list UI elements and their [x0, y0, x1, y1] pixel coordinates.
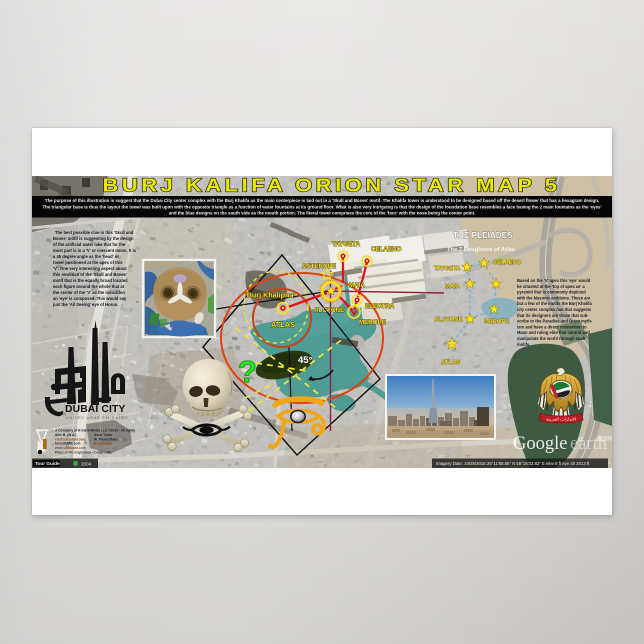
- svg-text:الامارات العربية: الامارات العربية: [546, 417, 576, 421]
- svg-text:'V'. One very interesting aspe: 'V'. One very interesting aspect about: [53, 266, 127, 271]
- svg-text:BURJ KALIFA ORION STAR MAP 5: BURJ KALIFA ORION STAR MAP 5: [103, 176, 561, 196]
- svg-text:A Company of A-Saint-Media LLC: A Company of A-Saint-Media LLC ©2015 - A…: [55, 429, 135, 433]
- svg-text:MEROPE: MEROPE: [484, 319, 509, 325]
- svg-text:The purpose of this illustrati: The purpose of this illustration is sugg…: [45, 198, 599, 203]
- svg-text:motif that is the equally broa: motif that is the equally broad located: [53, 278, 128, 283]
- svg-text:but a few of the motifs the Bu: but a few of the motifs the Burj Khalifa: [517, 301, 593, 306]
- svg-text:each figure around the whole: each figure around the whole that at: [53, 284, 125, 289]
- svg-text:MEROPE: MEROPE: [359, 319, 386, 326]
- svg-text:Anna Tower: Anna Tower: [94, 433, 113, 437]
- svg-text:ELECTRA: ELECTRA: [365, 303, 395, 310]
- svg-text:a 45 degree angle as the 'head: a 45 degree angle as the 'head' or: [53, 254, 119, 259]
- svg-text:tony@UMB.com: tony@UMB.com: [55, 442, 80, 446]
- svg-text:?: ?: [238, 354, 257, 389]
- svg-text:manipulate the world through s: manipulate the world through such: [517, 336, 586, 341]
- svg-text:Based on the 'V' apex this 'ey: Based on the 'V' apex this 'eye' would: [517, 278, 591, 283]
- svg-text:ATLAS: ATLAS: [271, 320, 295, 329]
- svg-text:Bones' motif is suggesting by: Bones' motif is suggesting by the design: [53, 236, 134, 241]
- svg-text:earth: earth: [570, 434, 607, 454]
- svg-text:ALCYONE: ALCYONE: [434, 317, 462, 323]
- svg-text:and the blue designs on the so: and the blue designs on the south side a…: [169, 211, 476, 216]
- svg-text:TAYGETA: TAYGETA: [434, 266, 461, 272]
- svg-text:CELAENO: CELAENO: [371, 246, 401, 253]
- svg-text:that its designers are those t: that its designers are those that sub-: [517, 313, 589, 318]
- svg-text:'Burj Khalipha': 'Burj Khalipha': [245, 291, 295, 300]
- svg-text:TAYGETA: TAYGETA: [332, 241, 361, 248]
- svg-text:THE PLEIADES: THE PLEIADES: [453, 231, 513, 240]
- svg-text:Google: Google: [513, 434, 567, 454]
- svg-text:of the artificial water lake t: of the artificial water lake that for th…: [53, 242, 126, 247]
- svg-text:pyramid that is commonly depic: pyramid that is commonly depicted: [517, 290, 586, 295]
- svg-text:The triangular base is thus th: The triangular base is thus the layout t…: [42, 204, 601, 209]
- svg-text:most part is in a 'V' or cresc: most part is in a 'V' or crescent moon. …: [53, 248, 137, 253]
- svg-text:be situated at the 'top of ape: be situated at the 'top of apex as' a: [517, 284, 585, 289]
- svg-text:this rendition of the 'Skull a: this rendition of the 'Skull and Bones': [53, 272, 127, 277]
- svg-text:ATLAS: ATLAS: [441, 360, 460, 366]
- svg-text:motifs.: motifs.: [517, 342, 530, 347]
- svg-text:Maan and ruling elite that con: Maan and ruling elite that control and: [517, 330, 590, 335]
- svg-text:just the 'All Seeing' eye of H: just the 'All Seeing' eye of Horus.: [52, 302, 118, 307]
- svg-text:The best possible clue in this: The best possible clue in this 'Skull an…: [55, 230, 134, 235]
- svg-text:an 'eye' is composed. This wo: an 'eye' is composed. This would say: [53, 296, 127, 301]
- svg-text:ALCYONE: ALCYONE: [314, 307, 344, 314]
- svg-text:Imagery Date: 10/25/2015 25°: Imagery Date: 10/25/2015 25°11'50.55" N …: [436, 461, 590, 466]
- svg-text:the center of the 'V' as th: the center of the 'V' as the indication: [53, 290, 125, 295]
- svg-text:ASTEROPE: ASTEROPE: [302, 263, 336, 270]
- svg-text:45°: 45°: [298, 355, 313, 366]
- svg-text:Accounts@: Accounts@: [94, 442, 113, 446]
- svg-text:The 7 Daughters of Atlas: The 7 Daughters of Atlas: [447, 247, 515, 253]
- svg-text:ism and have a direct connecti: ism and have a direct connection to: [517, 324, 587, 329]
- svg-text:Tour Guide: Tour Guide: [35, 461, 60, 466]
- svg-text:with the Masonic emblems. Thes: with the Masonic emblems. These are: [516, 295, 591, 300]
- svg-text:electro@gmail.com: electro@gmail.com: [55, 437, 85, 441]
- svg-text:MAIA: MAIA: [445, 284, 461, 290]
- svg-text:www.UMBouni.com: www.UMBouni.com: [54, 446, 86, 450]
- svg-text:scribe to the Paradise and Ori: scribe to the Paradise and Orion myth-: [517, 319, 593, 324]
- svg-text:CELAENO: CELAENO: [493, 260, 522, 266]
- svg-text:W. Productions: W. Productions: [94, 437, 118, 441]
- svg-text:tower positioned at the apex: tower positioned at the apex of this: [53, 260, 123, 265]
- svg-text:Place of the inspiration • Dub: Place of the inspiration • Dubai UAE: [55, 451, 112, 455]
- svg-text:MAIA: MAIA: [349, 282, 365, 289]
- svg-text:Alex B. (W.A.): Alex B. (W.A.): [55, 433, 76, 437]
- svg-text:city center complex has that s: city center complex has that suggests: [517, 307, 592, 312]
- svg-text:DUBAI CITY: DUBAI CITY: [65, 404, 125, 415]
- svg-text:UNITED ARAB EMIRATES: UNITED ARAB EMIRATES: [66, 415, 129, 420]
- svg-text:2004: 2004: [81, 462, 92, 467]
